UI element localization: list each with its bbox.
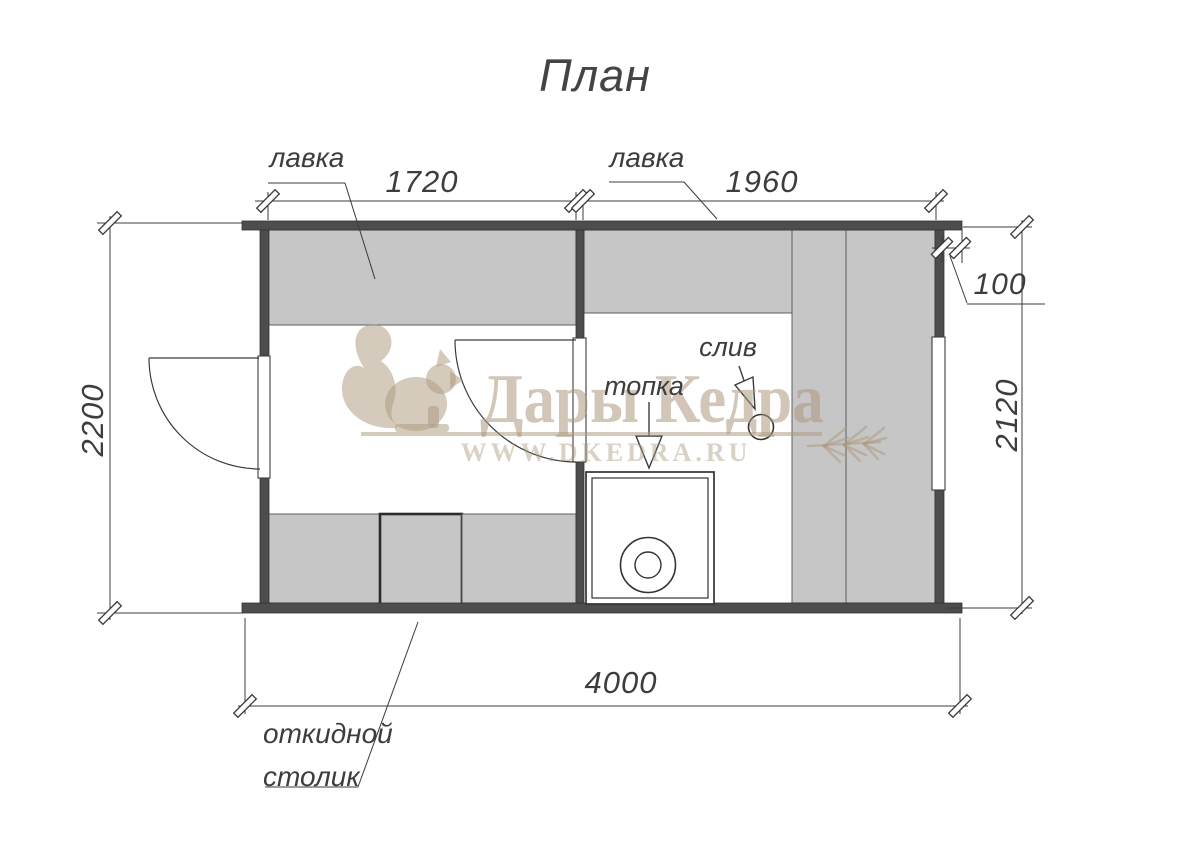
label-folding-table: откидной столик <box>263 712 393 798</box>
floor-plan-canvas: Дары Кедра WWW.DKEDRA.RU План 1720 1960 … <box>0 0 1200 848</box>
wall-left-upper <box>260 230 269 355</box>
label-stove: топка <box>574 371 714 402</box>
dim-right-height: 2120 <box>987 335 1027 495</box>
stove-chimney-inner <box>635 552 661 578</box>
dim-total-width: 4000 <box>541 665 701 701</box>
wall-partition-upper <box>576 230 584 338</box>
bench-room1-top <box>268 230 576 325</box>
partition-door-arc <box>455 340 576 462</box>
dim-wall-offset: 100 <box>950 268 1050 302</box>
folding-table <box>380 514 462 605</box>
page-title: План <box>495 50 695 102</box>
label-bench-left: лавка <box>237 142 377 174</box>
stove <box>586 472 714 604</box>
wall-partition-lower <box>576 462 584 603</box>
bench-room2-column-1 <box>792 230 846 603</box>
door-swings <box>149 340 576 469</box>
label-folding-table-line1: откидной <box>263 718 393 749</box>
window-right <box>932 337 945 490</box>
bench-room2-top <box>584 230 792 313</box>
bench-room2-column-2 <box>846 230 935 603</box>
label-drain: слив <box>658 332 798 363</box>
bench-room1-bottom-right <box>462 514 576 603</box>
drain-arrow-head <box>735 377 755 409</box>
entry-door-arc <box>149 358 260 469</box>
bench-room1-bottom-left <box>267 514 380 603</box>
label-bench-right: лавка <box>577 142 717 174</box>
dim-left-height: 2200 <box>73 340 113 500</box>
wall-top <box>242 221 962 230</box>
stove-arrow-head <box>636 436 662 468</box>
wall-left-lower <box>260 478 269 603</box>
label-folding-table-line2: столик <box>263 761 360 792</box>
drain-circle <box>749 415 774 440</box>
entry-door-jamb <box>258 356 270 478</box>
wall-right-lower <box>935 490 944 603</box>
